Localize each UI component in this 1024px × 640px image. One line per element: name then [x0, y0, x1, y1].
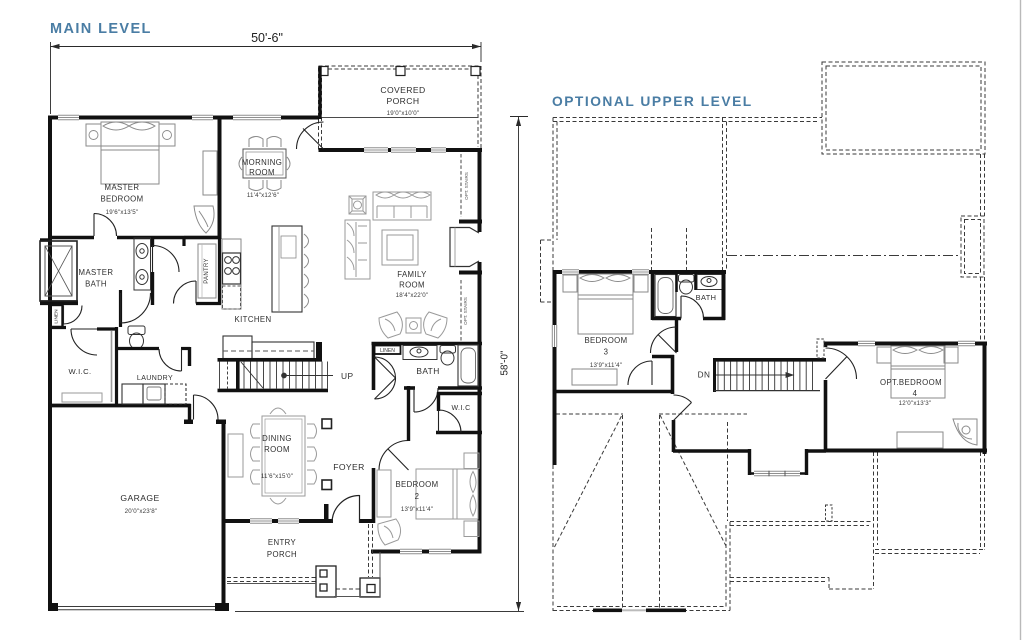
svg-text:OPT. STAIRS: OPT. STAIRS — [464, 172, 469, 200]
svg-text:OPT. STAIRS: OPT. STAIRS — [463, 297, 468, 325]
svg-text:BEDROOM: BEDROOM — [100, 195, 143, 204]
svg-text:4: 4 — [913, 389, 918, 398]
svg-text:50'-6": 50'-6" — [251, 31, 283, 45]
svg-text:OPTIONAL UPPER LEVEL: OPTIONAL UPPER LEVEL — [552, 94, 753, 109]
svg-text:MAIN LEVEL: MAIN LEVEL — [50, 21, 152, 37]
svg-text:58'-0": 58'-0" — [500, 350, 511, 375]
svg-text:11'6"x15'0": 11'6"x15'0" — [261, 473, 293, 480]
svg-text:ROOM: ROOM — [264, 445, 290, 454]
svg-text:ROOM: ROOM — [249, 168, 275, 177]
svg-text:OPT.BEDROOM: OPT.BEDROOM — [880, 378, 942, 387]
svg-text:W.I.C.: W.I.C. — [68, 367, 91, 376]
svg-text:PORCH: PORCH — [267, 550, 297, 559]
svg-text:GARAGE: GARAGE — [120, 493, 159, 503]
svg-text:FAMILY: FAMILY — [397, 270, 427, 279]
svg-text:13'9"x11'4": 13'9"x11'4" — [590, 362, 622, 369]
svg-text:MASTER: MASTER — [105, 183, 140, 192]
svg-text:13'9"x11'4": 13'9"x11'4" — [401, 506, 433, 513]
svg-text:19'0"x10'0": 19'0"x10'0" — [387, 110, 420, 117]
svg-text:20'0"x23'8": 20'0"x23'8" — [125, 508, 158, 515]
svg-text:PANTRY: PANTRY — [204, 258, 210, 284]
svg-text:2: 2 — [415, 492, 420, 501]
svg-text:KITCHEN: KITCHEN — [234, 315, 271, 324]
svg-text:DINING: DINING — [262, 434, 292, 443]
svg-text:BATH: BATH — [416, 366, 439, 376]
svg-text:W.I.C: W.I.C — [451, 405, 470, 412]
svg-text:LAUNDRY: LAUNDRY — [137, 375, 173, 382]
svg-text:MORNING: MORNING — [242, 158, 282, 167]
svg-text:ENTRY: ENTRY — [268, 538, 297, 547]
svg-text:PORCH: PORCH — [386, 96, 419, 106]
svg-text:COVERED: COVERED — [380, 85, 425, 95]
svg-text:BATH: BATH — [85, 280, 107, 289]
svg-text:BEDROOM: BEDROOM — [395, 480, 438, 489]
svg-text:FOYER: FOYER — [333, 462, 365, 472]
svg-text:11'4"x12'6": 11'4"x12'6" — [247, 192, 279, 199]
svg-text:MASTER: MASTER — [79, 268, 114, 277]
svg-text:ROOM: ROOM — [399, 281, 425, 290]
svg-text:LINEN: LINEN — [54, 309, 60, 324]
svg-text:BEDROOM: BEDROOM — [584, 336, 627, 345]
svg-text:3: 3 — [604, 348, 609, 357]
svg-text:18'4"x22'0": 18'4"x22'0" — [396, 292, 429, 299]
svg-text:12'0"x13'3": 12'0"x13'3" — [899, 400, 932, 407]
svg-text:UP: UP — [341, 371, 353, 381]
svg-text:LINEN: LINEN — [380, 348, 395, 354]
svg-text:DN: DN — [698, 371, 711, 380]
svg-text:19'6"x13'5": 19'6"x13'5" — [106, 209, 139, 216]
svg-text:BATH: BATH — [696, 293, 717, 302]
